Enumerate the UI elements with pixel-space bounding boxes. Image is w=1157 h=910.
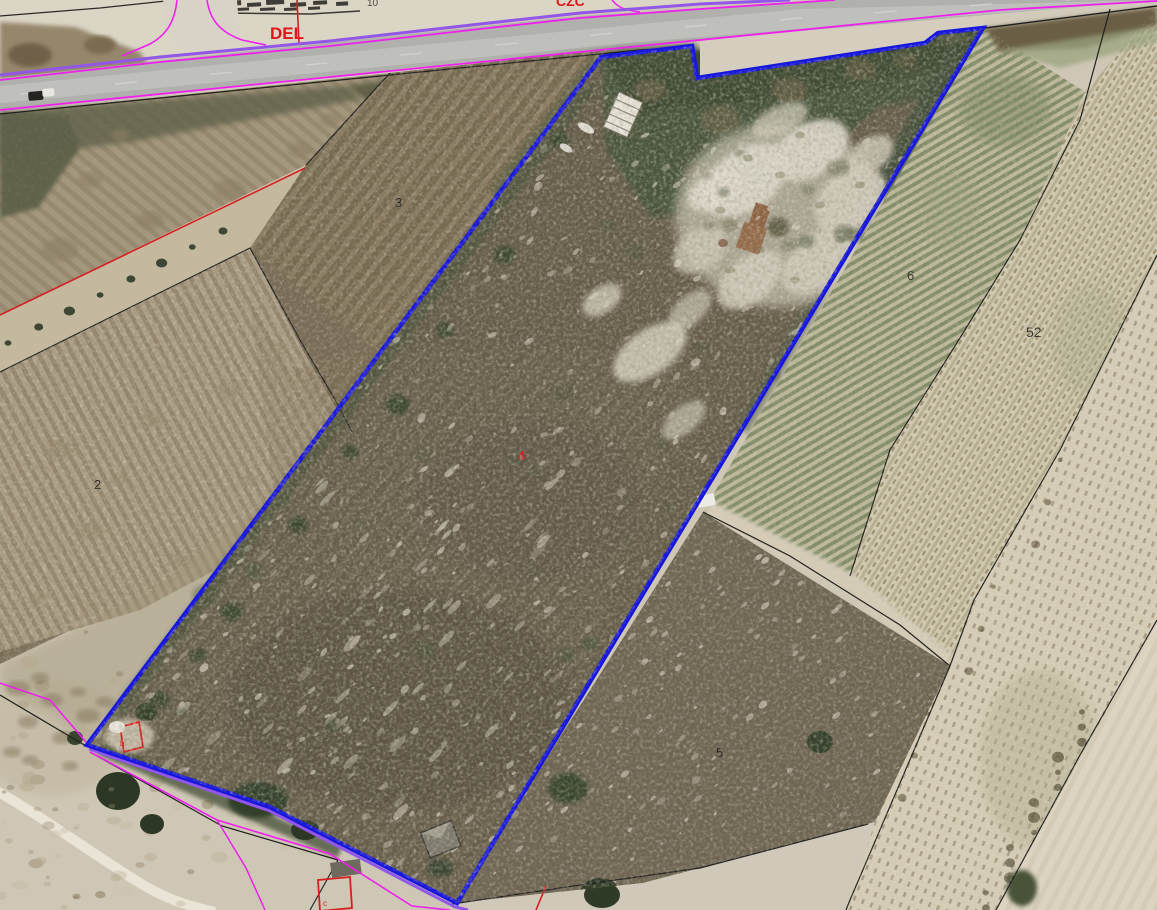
svg-text:c: c [323,899,327,908]
svg-text:DEL: DEL [270,24,304,43]
svg-text:CZC: CZC [556,0,585,9]
svg-text:10: 10 [367,0,379,9]
